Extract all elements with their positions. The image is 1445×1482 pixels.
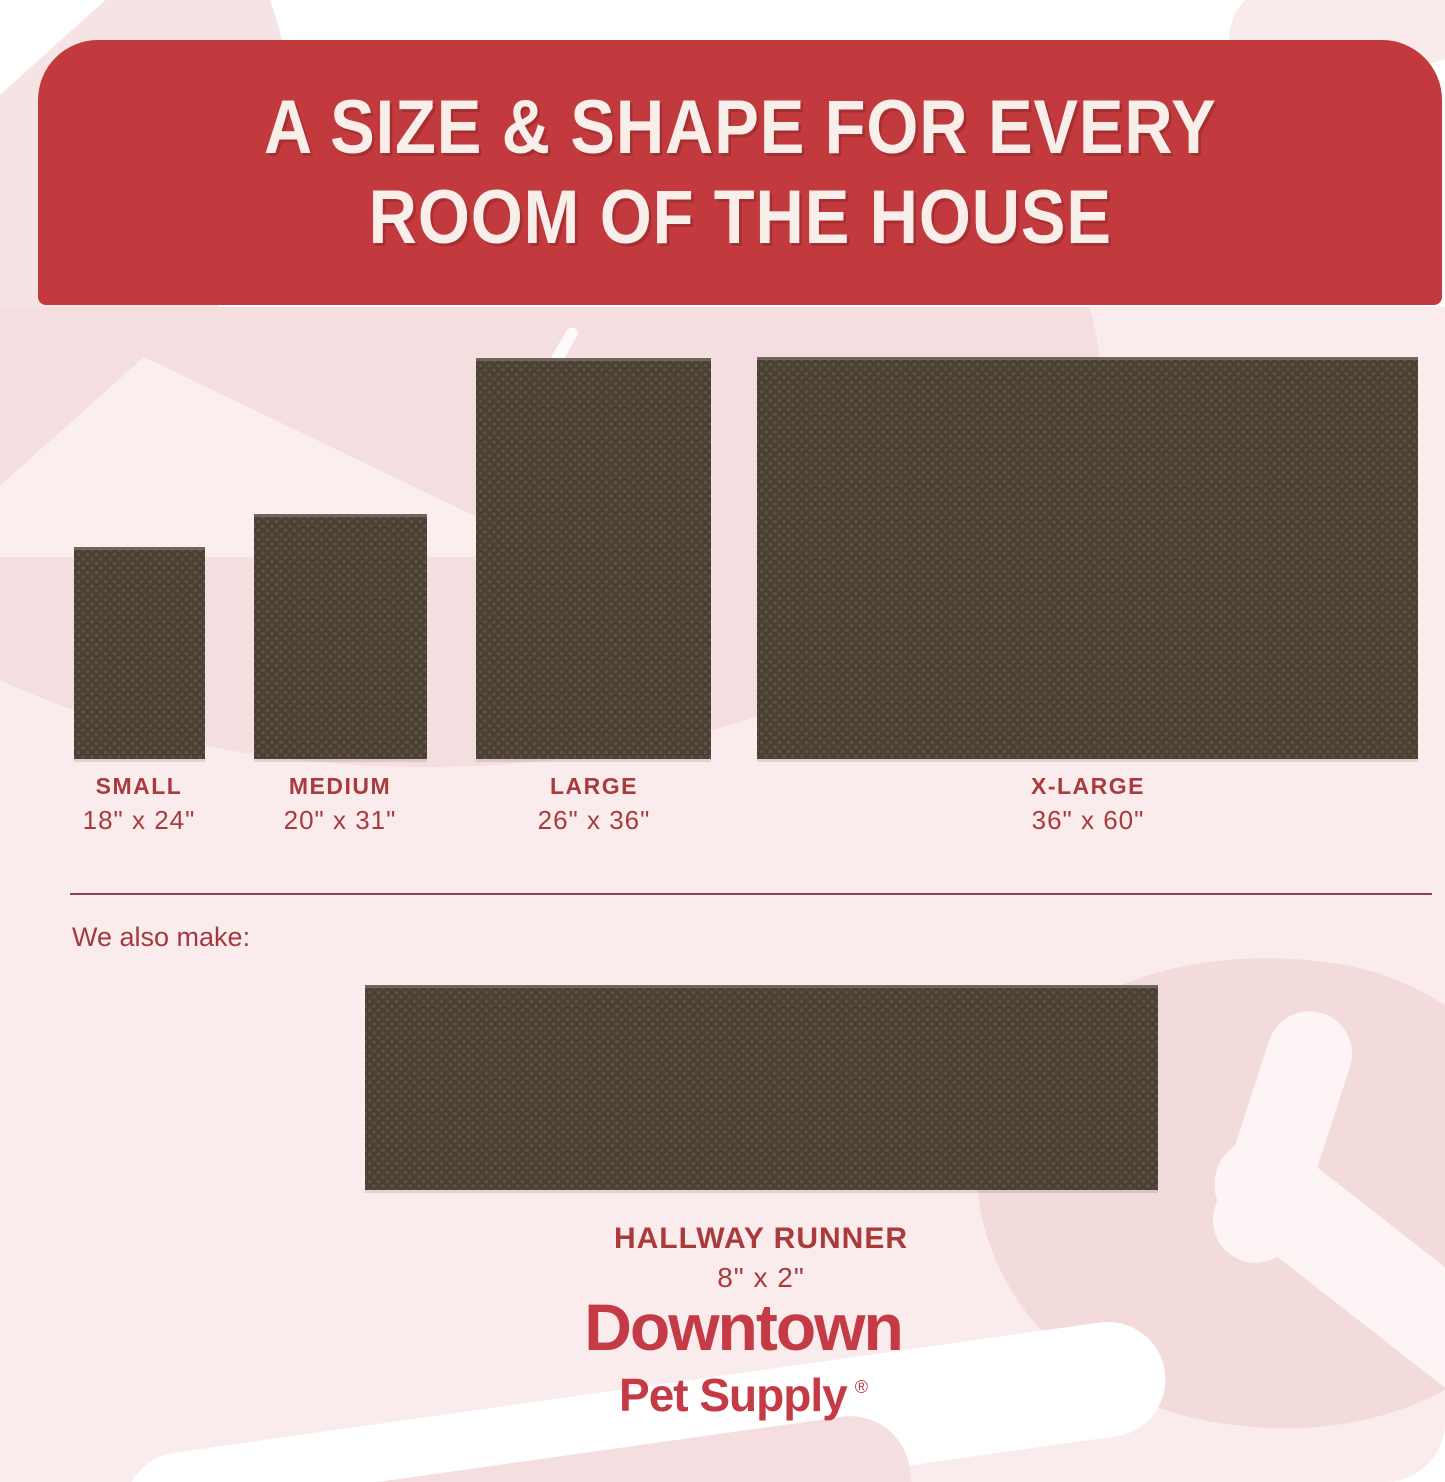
brand-tagline-text: Pet Supply	[619, 1369, 847, 1421]
size-name-xlarge: X-LARGE	[1031, 773, 1145, 800]
runner-name: HALLWAY RUNNER	[614, 1222, 908, 1256]
size-name-small: SMALL	[96, 773, 183, 800]
size-dimensions-large: 26" x 36"	[538, 805, 651, 836]
size-dimensions-medium: 20" x 31"	[284, 805, 397, 836]
rug-swatch-xlarge	[757, 357, 1418, 759]
size-dimensions-xlarge: 36" x 60"	[1032, 805, 1145, 836]
rug-swatch-hallway-runner	[365, 985, 1158, 1190]
header-banner: A SIZE & SHAPE FOR EVERY ROOM OF THE HOU…	[38, 40, 1442, 305]
brand-tagline: Pet Supply®	[584, 1361, 902, 1421]
content-panel: SMALL MEDIUM LARGE X-LARGE 18" x 24" 20"…	[0, 307, 1445, 1482]
page-title: A SIZE & SHAPE FOR EVERY ROOM OF THE HOU…	[264, 83, 1217, 263]
decorative-white-curve-a	[1202, 1000, 1363, 1274]
size-name-medium: MEDIUM	[289, 773, 391, 800]
decorative-white-curve-b	[1195, 1118, 1445, 1451]
also-make-label: We also make:	[72, 922, 250, 953]
rug-swatch-large	[476, 358, 711, 759]
size-dimensions-small: 18" x 24"	[83, 805, 196, 836]
registered-trademark-mark: ®	[855, 1377, 867, 1397]
page-title-line-2: ROOM OF THE HOUSE	[264, 173, 1217, 263]
brand-name: Downtown	[584, 1295, 902, 1359]
rug-swatch-medium	[254, 514, 427, 759]
size-name-large: LARGE	[550, 773, 638, 800]
infographic-canvas: A SIZE & SHAPE FOR EVERY ROOM OF THE HOU…	[0, 0, 1445, 1482]
rug-swatch-small	[74, 547, 205, 759]
section-divider	[70, 893, 1432, 895]
brand-logo: Downtown Pet Supply®	[584, 1295, 902, 1421]
page-title-line-1: A SIZE & SHAPE FOR EVERY	[264, 83, 1217, 173]
